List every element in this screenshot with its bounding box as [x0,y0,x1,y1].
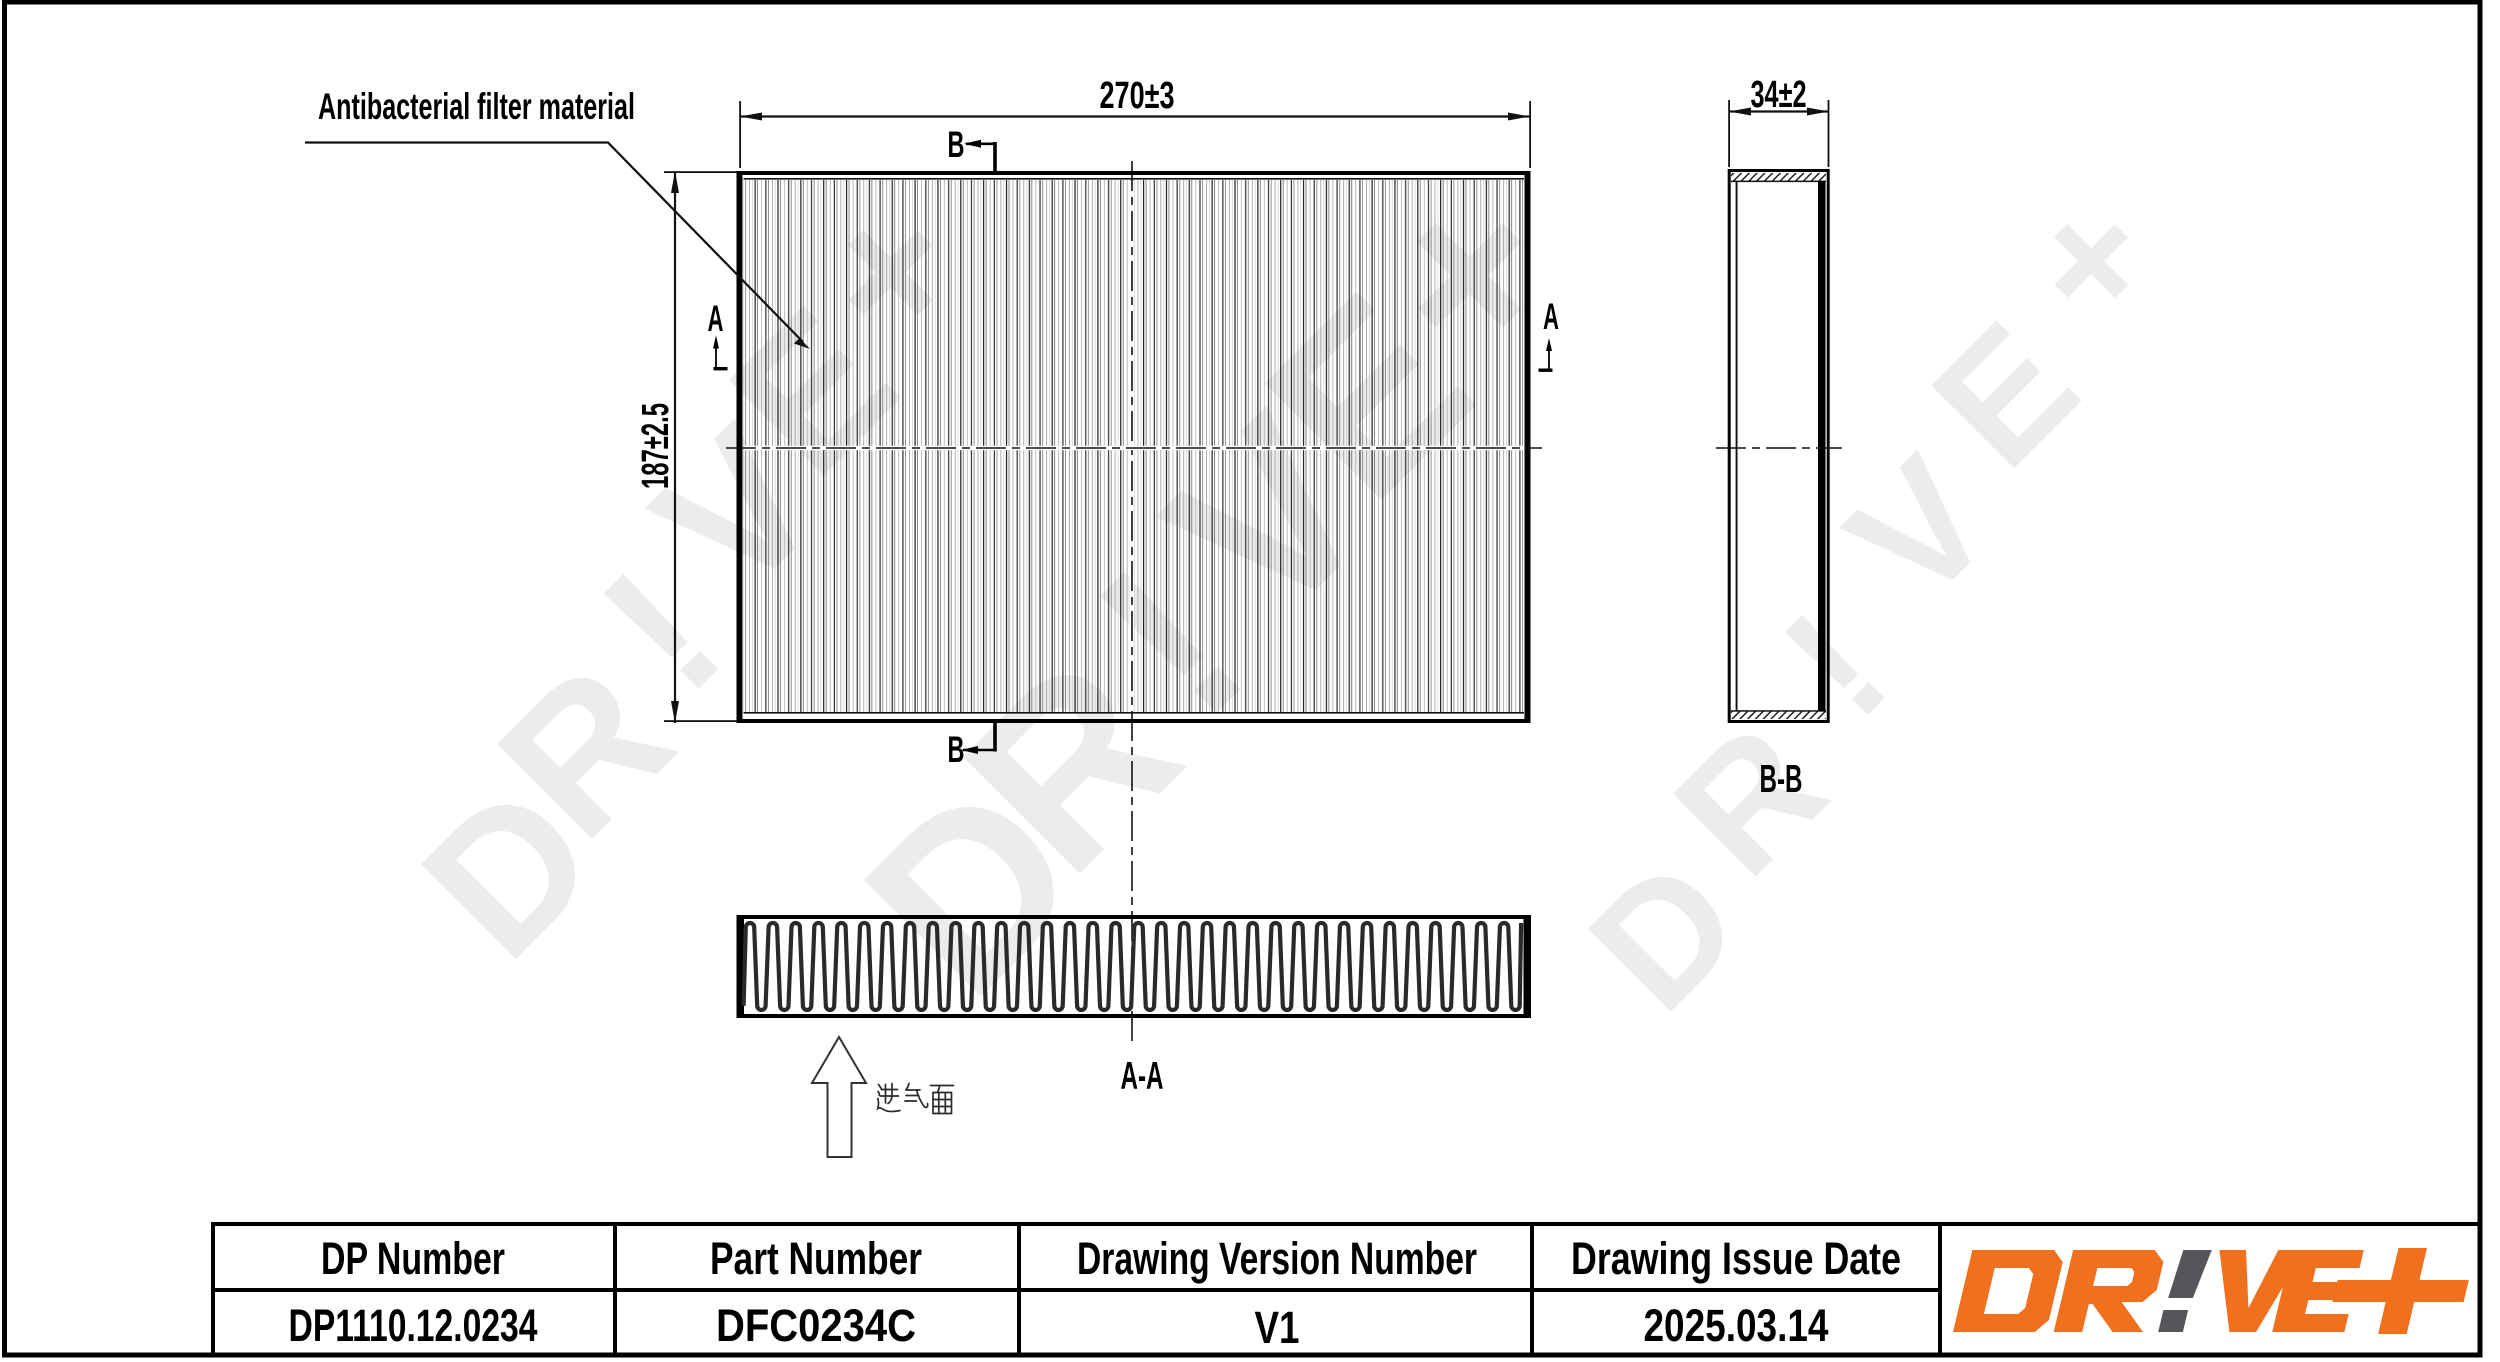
svg-text:A-A: A-A [1121,1055,1164,1098]
svg-text:2025.03.14: 2025.03.14 [1644,1300,1829,1351]
svg-text:V1: V1 [1255,1302,1300,1353]
svg-text:DP Number: DP Number [321,1233,505,1284]
svg-text:DP1110.12.0234: DP1110.12.0234 [289,1300,538,1351]
svg-text:A: A [708,298,724,339]
svg-text:Drawing Version Number: Drawing Version Number [1077,1233,1477,1284]
svg-text:Part Number: Part Number [710,1233,922,1284]
svg-text:Drawing Issue Date: Drawing Issue Date [1571,1233,1901,1284]
svg-text:187±2.5: 187±2.5 [635,403,677,489]
svg-text:B: B [948,124,965,165]
svg-text:Antibacterial filter material: Antibacterial filter material [318,86,635,127]
svg-text:34±2: 34±2 [1751,74,1807,116]
svg-text:B-B: B-B [1760,758,1803,801]
svg-text:270±3: 270±3 [1100,75,1175,117]
svg-text:A: A [1543,296,1559,337]
svg-text:DFC0234C: DFC0234C [716,1300,916,1351]
svg-text:B: B [948,729,965,770]
